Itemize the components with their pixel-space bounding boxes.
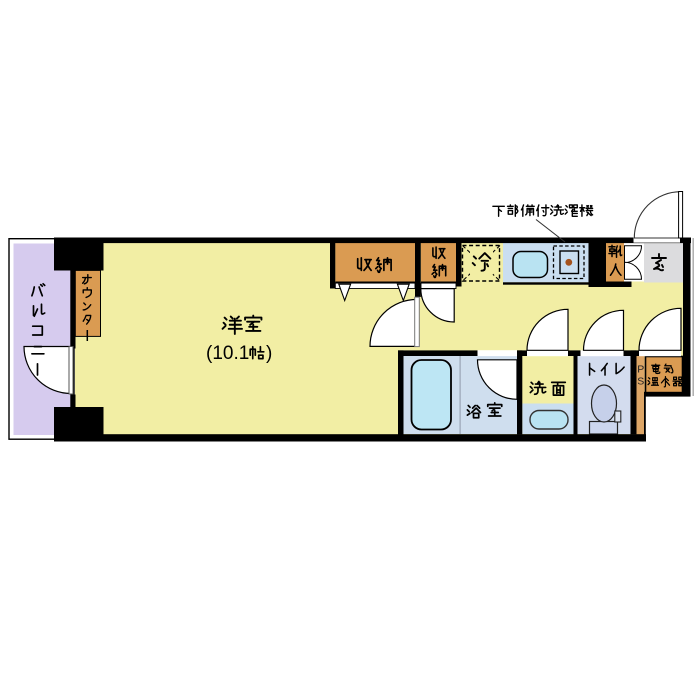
svg-text:S: S: [637, 376, 644, 388]
svg-text:): ): [266, 343, 272, 364]
svg-text:P: P: [637, 364, 644, 376]
svg-text:(10.1: (10.1: [206, 343, 249, 364]
